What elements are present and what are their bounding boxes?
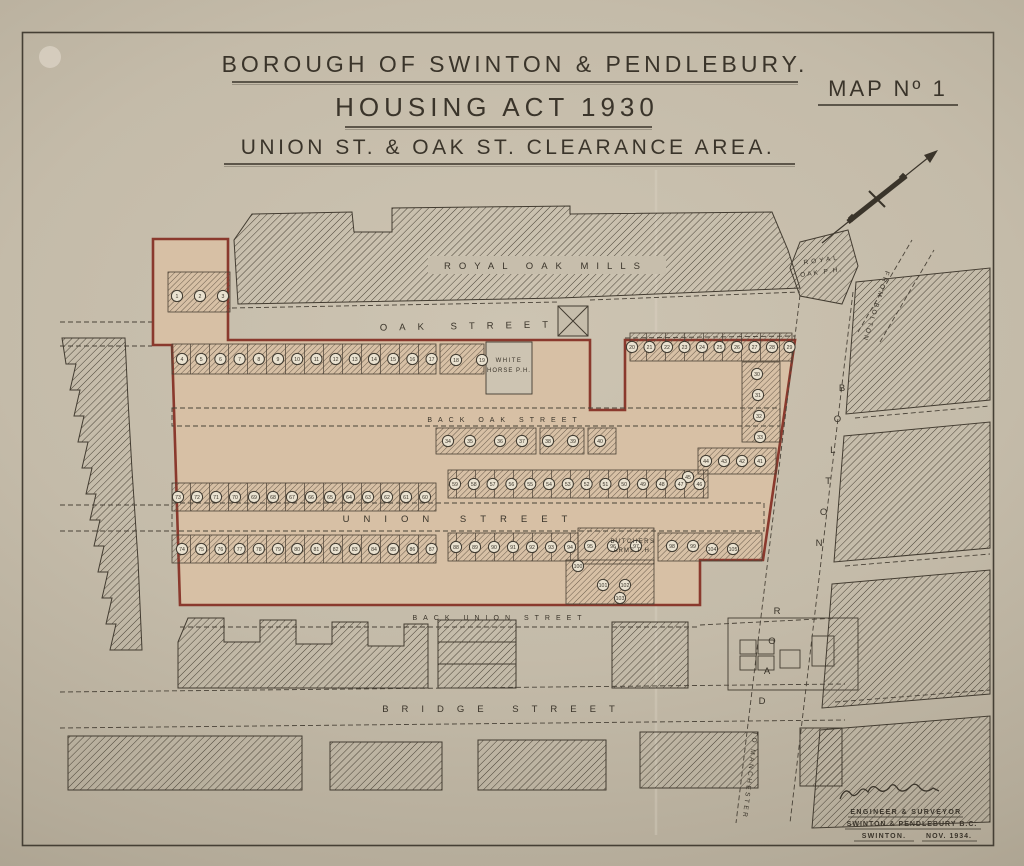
house-number-marker: 16 xyxy=(407,353,418,364)
house-number-marker: 64 xyxy=(343,491,354,502)
house-number-marker: 82 xyxy=(330,543,341,554)
svg-text:60: 60 xyxy=(422,495,428,501)
royal-oak-ph-building xyxy=(790,230,858,304)
house-number-marker: 80 xyxy=(292,543,303,554)
house-number-marker: 14 xyxy=(368,353,379,364)
royal-oak-mills-building xyxy=(234,206,800,304)
svg-text:20: 20 xyxy=(629,345,635,351)
house-number-marker: 28 xyxy=(766,341,777,352)
house-number-marker: 57 xyxy=(487,478,498,489)
svg-text:98: 98 xyxy=(669,544,675,550)
svg-text:7: 7 xyxy=(238,357,241,363)
house-number-marker: 48 xyxy=(656,478,667,489)
svg-text:16: 16 xyxy=(410,357,416,363)
house-number-marker: 32 xyxy=(753,410,764,421)
house-number-marker: 87 xyxy=(426,543,437,554)
label-white-horse-ph-2: HORSE P.H. xyxy=(487,368,531,374)
street-label-back-oak-street: BACK OAK STREET xyxy=(427,417,582,424)
house-number-marker: 100 xyxy=(572,560,583,571)
svg-text:70: 70 xyxy=(232,495,238,501)
svg-text:48: 48 xyxy=(659,482,665,488)
bolton-road-letter: B xyxy=(839,383,845,394)
svg-text:37: 37 xyxy=(519,439,525,445)
svg-text:71: 71 xyxy=(213,495,219,501)
house-number-marker: 62 xyxy=(381,491,392,502)
house-number-marker: 89 xyxy=(469,541,480,552)
svg-text:94: 94 xyxy=(567,545,573,551)
svg-text:36: 36 xyxy=(497,439,503,445)
house-number-marker: 99 xyxy=(687,540,698,551)
svg-text:45: 45 xyxy=(685,475,691,481)
svg-text:4: 4 xyxy=(181,357,184,363)
house-number-marker: 39 xyxy=(567,435,578,446)
house-number-marker: 54 xyxy=(543,478,554,489)
signature-line-1: ENGINEER & SURVEYOR xyxy=(850,809,961,816)
clearance-map: BOROUGH OF SWINTON & PENDLEBURY. HOUSING… xyxy=(0,0,1024,866)
house-number-marker: 78 xyxy=(253,543,264,554)
street-label-union-street: UNION STREET xyxy=(343,514,582,525)
svg-text:43: 43 xyxy=(721,459,727,465)
house-number-marker: 41 xyxy=(754,455,765,466)
signature-place: SWINTON. xyxy=(862,833,906,840)
house-number-marker: 79 xyxy=(272,543,283,554)
bolton-road-letter: O xyxy=(820,507,827,518)
house-number-marker: 20 xyxy=(626,341,637,352)
house-number-marker: 47 xyxy=(675,478,686,489)
svg-text:76: 76 xyxy=(218,547,224,553)
paper-stain xyxy=(39,46,61,68)
north-arrow-icon xyxy=(822,150,938,243)
house-number-marker: 88 xyxy=(450,541,461,552)
signature-date: NOV. 1934. xyxy=(926,833,972,840)
svg-text:77: 77 xyxy=(237,547,243,553)
bolton-road-letter: N xyxy=(816,538,823,549)
svg-text:42: 42 xyxy=(739,459,745,465)
svg-text:8: 8 xyxy=(257,357,260,363)
house-number-marker: 90 xyxy=(488,541,499,552)
house-number-marker: 58 xyxy=(468,478,479,489)
house-number-marker: 104 xyxy=(706,543,717,554)
bolton-road-letter: O xyxy=(768,636,775,647)
svg-text:59: 59 xyxy=(452,482,458,488)
house-number-marker: 1 xyxy=(171,290,182,301)
house-number-marker: 33 xyxy=(754,431,765,442)
house-number-marker: 46 xyxy=(694,478,705,489)
svg-text:53: 53 xyxy=(565,482,571,488)
house-number-marker: 49 xyxy=(637,478,648,489)
svg-text:57: 57 xyxy=(490,482,496,488)
house-number-marker: 12 xyxy=(330,353,341,364)
house-number-marker: 22 xyxy=(661,341,672,352)
svg-text:18: 18 xyxy=(453,358,459,364)
page-title: BOROUGH OF SWINTON & PENDLEBURY. xyxy=(222,51,809,77)
west-terrace xyxy=(62,338,142,650)
svg-text:102: 102 xyxy=(621,583,630,589)
house-number-marker: 74 xyxy=(176,543,187,554)
house-number-marker: 73 xyxy=(172,491,183,502)
house-number-marker: 5 xyxy=(196,353,207,364)
svg-text:83: 83 xyxy=(352,547,358,553)
svg-text:80: 80 xyxy=(294,547,300,553)
svg-text:67: 67 xyxy=(289,495,295,501)
house-number-marker: 10 xyxy=(292,353,303,364)
svg-text:99: 99 xyxy=(690,544,696,550)
svg-text:82: 82 xyxy=(333,547,339,553)
svg-text:79: 79 xyxy=(275,547,281,553)
svg-text:1: 1 xyxy=(176,294,179,300)
title-housing-act: HOUSING ACT 1930 xyxy=(335,92,659,122)
house-number-marker: 66 xyxy=(305,491,316,502)
svg-text:92: 92 xyxy=(529,545,535,551)
svg-text:52: 52 xyxy=(584,482,590,488)
svg-text:61: 61 xyxy=(403,495,409,501)
house-number-marker: 21 xyxy=(644,341,655,352)
street-label-oak-street: OAK STREET xyxy=(380,319,560,333)
bolton-road-letter: O xyxy=(834,414,841,425)
svg-text:89: 89 xyxy=(472,545,478,551)
svg-text:40: 40 xyxy=(597,439,603,445)
svg-text:72: 72 xyxy=(194,495,200,501)
svg-text:78: 78 xyxy=(256,547,262,553)
svg-text:104: 104 xyxy=(708,547,717,553)
house-number-marker: 93 xyxy=(545,541,556,552)
svg-text:17: 17 xyxy=(429,357,435,363)
svg-text:46: 46 xyxy=(697,482,703,488)
house-number-marker: 38 xyxy=(542,435,553,446)
south-terrace xyxy=(178,618,428,688)
bolton-road-letter: R xyxy=(774,606,781,617)
house-number-marker: 23 xyxy=(679,341,690,352)
svg-text:2: 2 xyxy=(199,294,202,300)
house-number-marker: 77 xyxy=(234,543,245,554)
house-number-marker: 94 xyxy=(564,541,575,552)
house-number-marker: 105 xyxy=(727,543,738,554)
house-number-marker: 19 xyxy=(476,354,487,365)
label-royal-oak-mills: ROYAL OAK MILLS xyxy=(444,261,648,272)
svg-text:31: 31 xyxy=(755,393,761,399)
svg-text:66: 66 xyxy=(308,495,314,501)
house-number-marker: 67 xyxy=(286,491,297,502)
svg-text:68: 68 xyxy=(270,495,276,501)
house-number-marker: 55 xyxy=(525,478,536,489)
house-number-marker: 85 xyxy=(388,543,399,554)
house-number-marker: 40 xyxy=(594,435,605,446)
svg-text:95: 95 xyxy=(587,544,593,550)
street-label-back-union-street: BACK UNION STREET xyxy=(412,615,587,622)
svg-text:54: 54 xyxy=(546,482,552,488)
svg-text:6: 6 xyxy=(219,357,222,363)
house-number-marker: 68 xyxy=(267,491,278,502)
svg-text:11: 11 xyxy=(314,357,319,363)
svg-text:87: 87 xyxy=(429,547,435,553)
house-number-marker: 91 xyxy=(507,541,518,552)
house-number-marker: 2 xyxy=(194,290,205,301)
house-number-marker: 72 xyxy=(191,491,202,502)
svg-text:64: 64 xyxy=(346,495,352,501)
house-number-marker: 4 xyxy=(176,353,187,364)
svg-text:91: 91 xyxy=(510,545,516,551)
house-number-marker: 15 xyxy=(388,353,399,364)
house-number-marker: 8 xyxy=(253,353,264,364)
house-number-marker: 9 xyxy=(272,353,283,364)
house-number-marker: 56 xyxy=(506,478,517,489)
svg-text:51: 51 xyxy=(603,482,609,488)
house-number-marker: 26 xyxy=(731,341,742,352)
house-number-marker: 7 xyxy=(234,353,245,364)
house-number-marker: 11 xyxy=(311,353,322,364)
house-number-marker: 44 xyxy=(700,455,711,466)
house-number-marker: 3 xyxy=(217,290,228,301)
house-number-marker: 63 xyxy=(362,491,373,502)
house-number-marker: 69 xyxy=(248,491,259,502)
svg-text:10: 10 xyxy=(294,357,300,363)
svg-text:69: 69 xyxy=(251,495,257,501)
svg-text:88: 88 xyxy=(453,545,459,551)
title-block: BOROUGH OF SWINTON & PENDLEBURY. HOUSING… xyxy=(222,51,958,167)
svg-text:81: 81 xyxy=(314,547,320,553)
house-number-marker: 27 xyxy=(749,341,760,352)
house-number-marker: 75 xyxy=(196,543,207,554)
house-number-marker: 70 xyxy=(229,491,240,502)
svg-text:49: 49 xyxy=(640,482,646,488)
label-butchers-arms-ph-2: ARMS P.H. xyxy=(614,548,653,554)
house-number-marker: 37 xyxy=(516,435,527,446)
house-number-marker: 25 xyxy=(714,341,725,352)
svg-text:32: 32 xyxy=(756,414,762,420)
svg-text:105: 105 xyxy=(729,547,738,553)
svg-text:100: 100 xyxy=(574,564,583,570)
svg-text:74: 74 xyxy=(179,547,185,553)
house-number-marker: 34 xyxy=(442,435,453,446)
house-number-marker: 102 xyxy=(619,579,630,590)
svg-text:55: 55 xyxy=(527,482,533,488)
svg-text:41: 41 xyxy=(757,459,763,465)
svg-text:93: 93 xyxy=(548,545,554,551)
svg-text:56: 56 xyxy=(509,482,515,488)
house-number-marker: 13 xyxy=(349,353,360,364)
title-clearance-area: UNION ST. & OAK ST. CLEARANCE AREA. xyxy=(241,136,775,159)
svg-text:23: 23 xyxy=(682,345,688,351)
house-number-marker: 17 xyxy=(426,353,437,364)
svg-text:63: 63 xyxy=(365,495,371,501)
svg-text:22: 22 xyxy=(664,345,670,351)
svg-text:86: 86 xyxy=(410,547,416,553)
map-number: MAP Nº 1 xyxy=(828,76,948,101)
svg-text:14: 14 xyxy=(371,357,377,363)
house-number-marker: 24 xyxy=(696,341,707,352)
svg-text:29: 29 xyxy=(787,345,793,351)
svg-text:44: 44 xyxy=(703,459,709,465)
svg-text:90: 90 xyxy=(491,545,497,551)
label-white-horse-ph-1: WHITE xyxy=(496,358,523,364)
svg-text:19: 19 xyxy=(479,358,485,364)
house-number-marker: 6 xyxy=(215,353,226,364)
house-number-marker: 30 xyxy=(751,368,762,379)
svg-text:34: 34 xyxy=(445,439,451,445)
house-number-marker: 36 xyxy=(494,435,505,446)
svg-text:75: 75 xyxy=(198,547,204,553)
house-number-marker: 52 xyxy=(581,478,592,489)
svg-text:25: 25 xyxy=(717,345,723,351)
svg-text:33: 33 xyxy=(757,435,763,441)
house-number-marker: 18 xyxy=(450,354,461,365)
svg-text:62: 62 xyxy=(384,495,390,501)
svg-text:73: 73 xyxy=(175,495,181,501)
svg-text:27: 27 xyxy=(752,345,758,351)
house-number-marker: 98 xyxy=(666,540,677,551)
signature-line-2: SWINTON & PENDLEBURY B.C. xyxy=(847,821,978,828)
svg-text:15: 15 xyxy=(390,357,396,363)
house-number-marker: 53 xyxy=(562,478,573,489)
house-number-marker: 29 xyxy=(784,341,795,352)
bolton-road-letter: L xyxy=(830,445,835,456)
svg-text:5: 5 xyxy=(200,357,203,363)
house-number-marker: 35 xyxy=(464,435,475,446)
bolton-road-letter: T xyxy=(825,476,831,487)
svg-text:58: 58 xyxy=(471,482,477,488)
svg-text:26: 26 xyxy=(734,345,740,351)
svg-text:38: 38 xyxy=(545,439,551,445)
house-number-marker: 95 xyxy=(584,540,595,551)
house-number-marker: 92 xyxy=(526,541,537,552)
bolton-road-letter: A xyxy=(764,666,771,677)
svg-text:28: 28 xyxy=(769,345,775,351)
house-number-marker: 81 xyxy=(311,543,322,554)
house-number-marker: 42 xyxy=(736,455,747,466)
svg-text:65: 65 xyxy=(327,495,333,501)
svg-text:21: 21 xyxy=(647,345,653,351)
svg-text:101: 101 xyxy=(599,583,608,589)
svg-text:50: 50 xyxy=(621,482,627,488)
svg-text:13: 13 xyxy=(352,357,358,363)
house-number-marker: 60 xyxy=(419,491,430,502)
house-number-marker: 51 xyxy=(600,478,611,489)
svg-text:12: 12 xyxy=(333,357,339,363)
house-number-marker: 86 xyxy=(407,543,418,554)
svg-text:39: 39 xyxy=(570,439,576,445)
svg-text:9: 9 xyxy=(277,357,280,363)
svg-text:30: 30 xyxy=(754,372,760,378)
house-number-marker: 50 xyxy=(619,478,630,489)
house-number-marker: 71 xyxy=(210,491,221,502)
label-butchers-arms-ph-1: BUTCHERS xyxy=(610,539,655,545)
svg-text:24: 24 xyxy=(699,345,705,351)
svg-text:85: 85 xyxy=(390,547,396,553)
house-number-marker: 31 xyxy=(752,389,763,400)
house-number-marker: 84 xyxy=(368,543,379,554)
house-number-marker: 61 xyxy=(400,491,411,502)
street-label-bridge-street: BRIDGE STREET xyxy=(382,704,628,715)
house-number-marker: 103 xyxy=(614,592,625,603)
svg-text:103: 103 xyxy=(616,596,625,602)
house-number-marker: 76 xyxy=(215,543,226,554)
svg-text:3: 3 xyxy=(222,294,225,300)
house-number-marker: 83 xyxy=(349,543,360,554)
house-number-marker: 65 xyxy=(324,491,335,502)
house-number-marker: 101 xyxy=(597,579,608,590)
house-number-marker: 59 xyxy=(449,478,460,489)
svg-text:47: 47 xyxy=(678,482,684,488)
bolton-road-letter: D xyxy=(759,696,766,707)
crossing-mark xyxy=(558,306,588,336)
svg-text:84: 84 xyxy=(371,547,377,553)
svg-text:35: 35 xyxy=(467,439,473,445)
house-number-marker: 43 xyxy=(718,455,729,466)
